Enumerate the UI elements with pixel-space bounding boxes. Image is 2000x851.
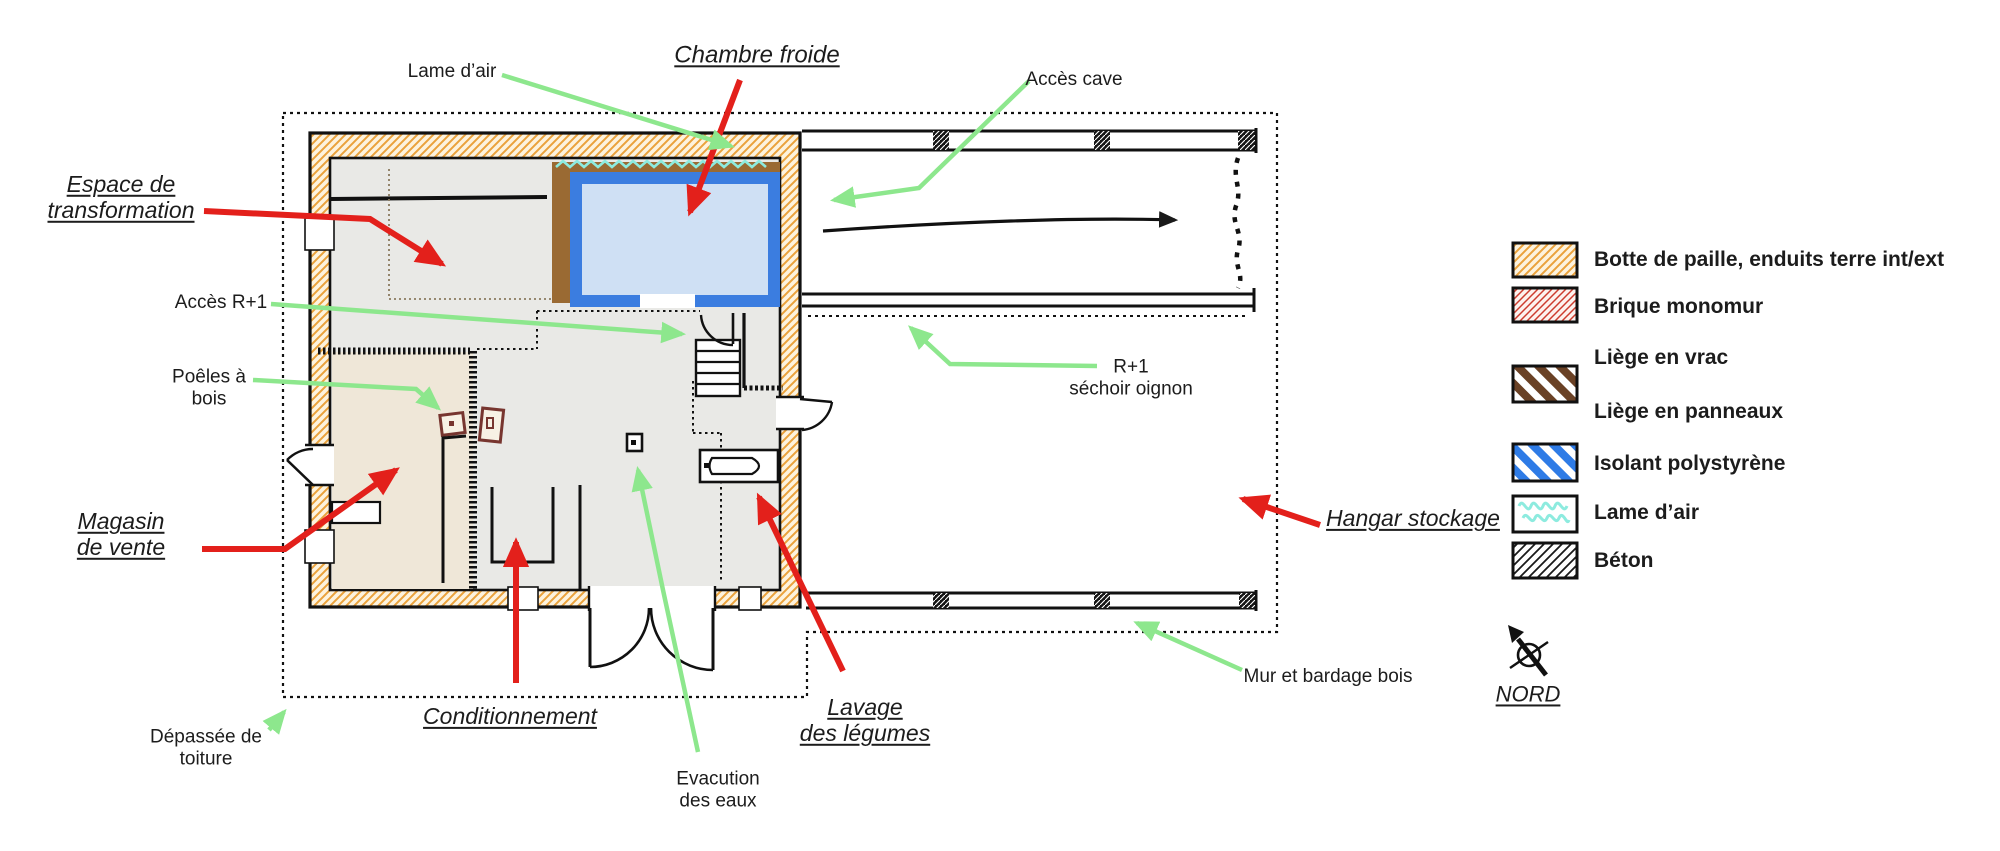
floor-plan-drawing [0, 0, 2000, 851]
cold-room-door-gap [640, 294, 695, 308]
swatch-straw [1513, 243, 1577, 277]
legend-swatches [1513, 243, 1577, 578]
main-building [287, 133, 832, 670]
washing-sink [700, 450, 778, 482]
legend-label-liege-vrac: Liège en vrac [1594, 346, 1728, 370]
cold-room-floor [582, 184, 768, 295]
swatch-polystyrene [1513, 444, 1577, 481]
door-gap-left [305, 445, 334, 485]
legend-label-lame-air: Lame d’air [1594, 501, 1699, 525]
entry-double-door [590, 608, 713, 670]
label-poeles-bois: Poêles à bois [172, 366, 246, 409]
legend-label-paille: Botte de paille, enduits terre int/ext [1594, 248, 1944, 272]
label-nord: NORD [1496, 681, 1561, 706]
label-mur-bardage: Mur et bardage bois [1244, 666, 1413, 688]
label-depassee-toiture: Dépassée de toiture [150, 726, 262, 769]
partition-wall-transformation [331, 197, 547, 199]
swatch-concrete [1513, 543, 1577, 578]
circulation-arrow [823, 219, 1175, 231]
label-conditionnement: Conditionnement [423, 703, 597, 729]
swatch-air-gap [1513, 496, 1577, 532]
label-hangar-stockage: Hangar stockage [1326, 505, 1500, 531]
entry-door-gap [589, 586, 715, 611]
arrow-bardage [1137, 623, 1242, 670]
hangar-post [933, 593, 949, 608]
label-espace-transformation: Espace de transformation [47, 171, 194, 223]
arrow-hangar [1243, 499, 1320, 525]
legend-label-brique: Brique monomur [1594, 295, 1763, 319]
legend-label-polystyrene: Isolant polystyrène [1594, 452, 1785, 476]
swatch-brick [1513, 288, 1577, 322]
arrow-acces-cave [834, 81, 1029, 200]
door-to-hangar [800, 399, 832, 430]
floor-plan-page: Lame d’air Chambre froide Accès cave Esp… [0, 0, 2000, 851]
legend-label-liege-panneaux: Liège en panneaux [1594, 400, 1783, 424]
hangar-post [1238, 131, 1255, 150]
label-acces-r1: Accès R+1 [175, 292, 267, 314]
hangar-post [1094, 131, 1110, 150]
arrow-depassee [269, 712, 284, 730]
north-compass [1508, 625, 1548, 675]
cold-room [552, 161, 780, 308]
label-evacuation-eaux: Evacution des eaux [676, 768, 759, 811]
window-bottom-1 [508, 587, 538, 610]
label-chambre-froide: Chambre froide [674, 41, 839, 68]
window-bottom-2 [739, 587, 761, 610]
cave-stairs-sketch [1234, 158, 1240, 288]
cork-panel-left [552, 162, 570, 303]
swatch-cork [1513, 366, 1577, 402]
label-acces-cave: Accès cave [1025, 69, 1122, 91]
floor-drain [627, 434, 642, 451]
label-lavage-legumes: Lavage des légumes [800, 694, 930, 746]
hangar-post [1239, 593, 1255, 608]
hangar-wall-middle [802, 288, 1254, 312]
label-magasin-vente: Magasin de vente [77, 508, 165, 560]
label-lame-air: Lame d’air [408, 61, 497, 83]
window-left-1 [305, 218, 334, 250]
hangar-wall-north [802, 128, 1256, 153]
hangar-wall-south [806, 590, 1256, 611]
label-r1-sechoir: R+1 séchoir oignon [1069, 356, 1193, 399]
hangar-post [1094, 593, 1110, 608]
hangar-post [933, 131, 949, 150]
legend-label-beton: Béton [1594, 549, 1654, 573]
door-gap-hangar [776, 397, 804, 429]
